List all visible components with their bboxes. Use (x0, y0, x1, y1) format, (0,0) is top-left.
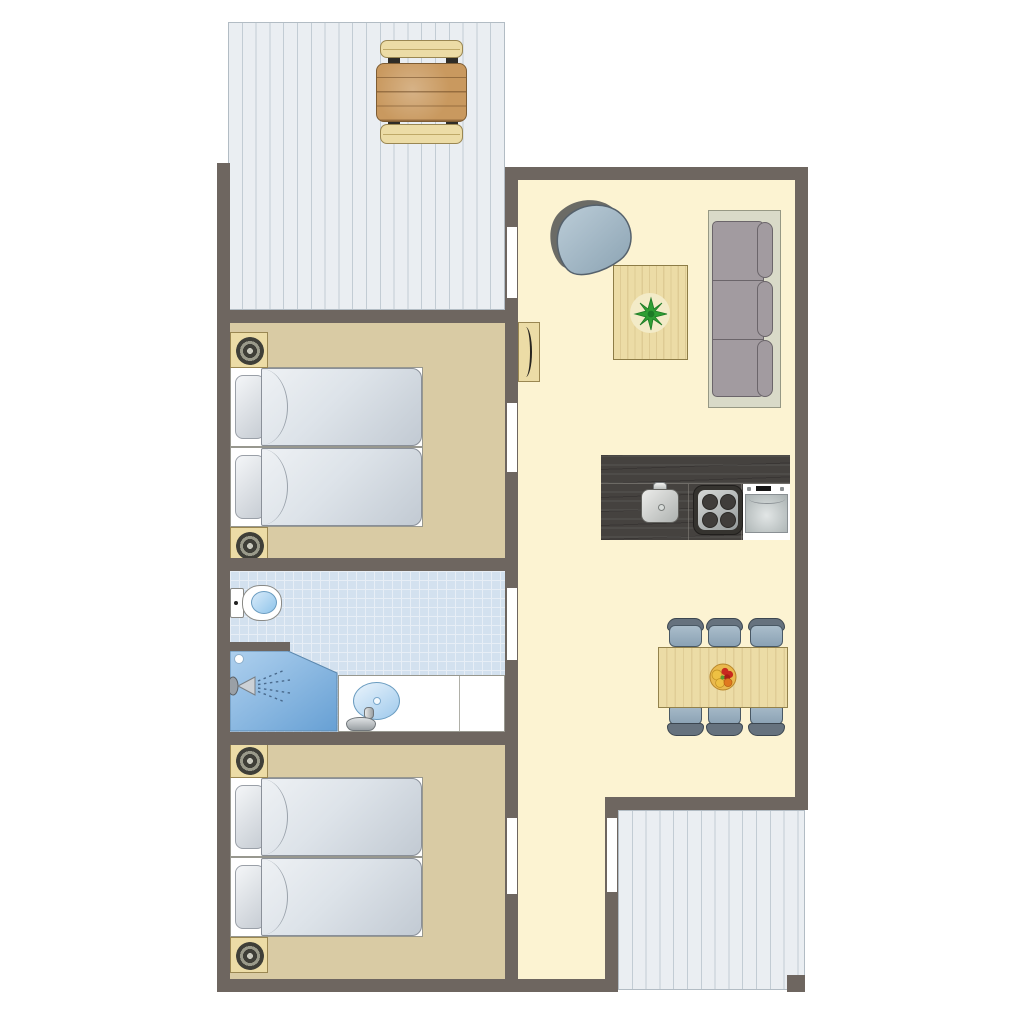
kitchen-counter (601, 455, 790, 540)
counter-seam (688, 484, 689, 540)
chair-back (706, 723, 743, 736)
single-bed (230, 777, 423, 857)
dishwasher-display (756, 486, 771, 491)
plant-icon (633, 296, 669, 332)
picnic-bench (380, 124, 463, 144)
picnic-bench (380, 40, 463, 58)
hob (693, 485, 743, 535)
dining-chair (706, 703, 743, 737)
sofa-back-cushion (757, 222, 773, 278)
chair-back (748, 723, 785, 736)
nightstand (230, 332, 268, 368)
lamp-icon (236, 337, 264, 365)
single-bed (230, 367, 423, 447)
toilet-seat (251, 591, 277, 614)
bed-duvet (261, 778, 422, 856)
duvet-fold (262, 779, 288, 855)
sofa-seam (713, 280, 763, 281)
door-bathroom (507, 588, 517, 660)
shower (230, 640, 338, 732)
bed-duvet (261, 858, 422, 936)
terrace-bottom (618, 810, 805, 990)
nightstand (230, 937, 268, 973)
nightstand (230, 742, 268, 778)
wall-bathroom-bedroom2 (217, 732, 518, 745)
drain-icon (658, 504, 665, 511)
hob-surface (698, 490, 738, 530)
fruit-bowl (708, 662, 738, 692)
dishwasher-door (745, 494, 788, 533)
wall-terrace-bedroom1 (217, 310, 518, 323)
wall-bedroom1-bathroom (217, 558, 518, 571)
lamp-icon (236, 747, 264, 775)
burner-icon (702, 512, 718, 528)
duvet-fold (262, 369, 288, 445)
shower-head-icon (230, 677, 238, 695)
washbasin (353, 682, 400, 720)
wall-tv (518, 322, 540, 382)
flush-button (234, 601, 238, 605)
drain-icon (373, 697, 381, 705)
door-terrace-living (507, 227, 517, 298)
dishwasher-knob (747, 487, 751, 491)
terrace-post (787, 975, 805, 992)
wall-mid-horizontal (605, 797, 808, 810)
room-hallway (518, 797, 605, 979)
floor-plan (0, 0, 1024, 1024)
wall-left (217, 163, 230, 992)
burner-icon (702, 494, 718, 510)
vanity-counter (338, 675, 505, 732)
lamp-icon (236, 942, 264, 970)
duvet-fold (262, 449, 288, 525)
burner-icon (720, 494, 736, 510)
faucet-base (346, 717, 376, 731)
sofa-seam (713, 339, 763, 340)
wall-bottom (217, 979, 618, 992)
chair-seat (669, 625, 702, 647)
chair-seat (708, 625, 741, 647)
dishwasher-knob (780, 487, 784, 491)
single-bed (230, 447, 423, 527)
lamp-icon (236, 532, 264, 560)
door-hall-terrace (607, 818, 617, 892)
chair-back (667, 723, 704, 736)
bed-duvet (261, 368, 422, 446)
vanity-divider (459, 676, 460, 731)
kitchen-sink (641, 489, 679, 523)
dishwasher (743, 484, 790, 540)
sofa-back-cushion (757, 281, 773, 337)
wall-right (795, 167, 808, 810)
chair-seat (750, 625, 783, 647)
dishwasher-handle (749, 494, 785, 504)
dining-chair (748, 703, 785, 737)
bed-duvet (261, 448, 422, 526)
burner-icon (720, 512, 736, 528)
sofa-back-cushion (757, 340, 773, 397)
dining-chair (667, 703, 704, 737)
toilet (230, 585, 284, 621)
tv-screen (523, 327, 532, 377)
wall-top (505, 167, 808, 180)
picnic-table (376, 63, 467, 122)
sofa (708, 210, 781, 408)
duvet-fold (262, 859, 288, 935)
door-bedroom-1 (507, 403, 517, 472)
lounge-chair (546, 190, 644, 282)
single-bed (230, 857, 423, 937)
door-bedroom-2 (507, 818, 517, 894)
